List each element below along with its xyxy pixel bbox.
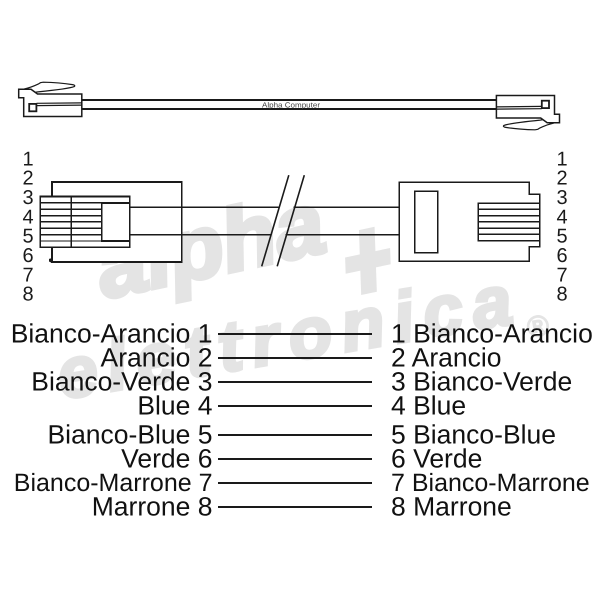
svg-text:Marrone 8: Marrone 8 <box>92 492 213 522</box>
svg-text:8: 8 <box>556 284 567 306</box>
svg-text:Alpha Computer: Alpha Computer <box>262 100 321 109</box>
svg-text:8: 8 <box>22 284 33 306</box>
svg-text:4 Blue: 4 Blue <box>391 391 466 421</box>
svg-text:Blue 4: Blue 4 <box>137 391 212 421</box>
svg-text:8 Marrone: 8 Marrone <box>391 492 512 522</box>
